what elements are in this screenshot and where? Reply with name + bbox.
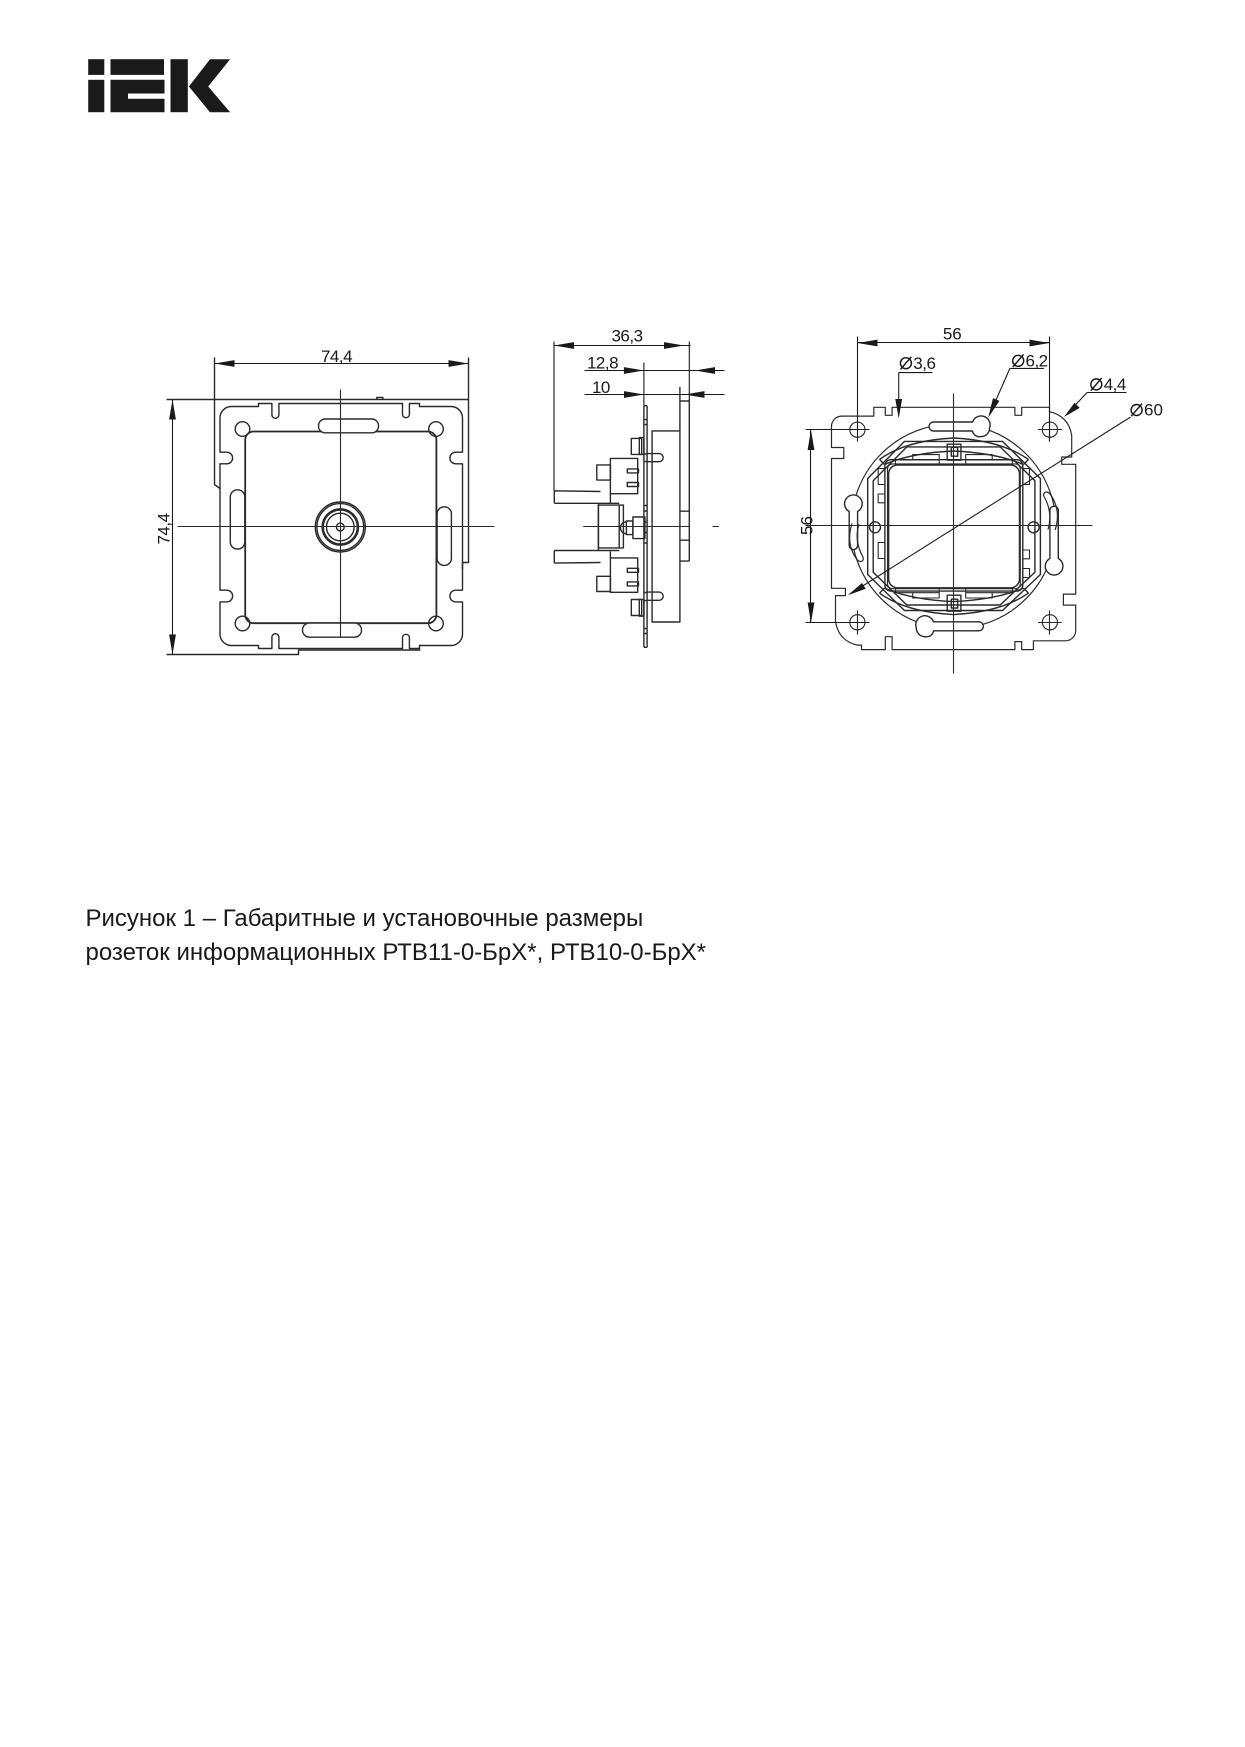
svg-text:74,4: 74,4 — [321, 347, 352, 366]
svg-text:60: 60 — [1144, 401, 1163, 420]
svg-text:12,8: 12,8 — [587, 354, 618, 373]
svg-text:розеток информационных РТВ11-0: розеток информационных РТВ11-0-БрХ*, РТВ… — [86, 939, 707, 966]
svg-text:36,3: 36,3 — [611, 326, 642, 345]
svg-text:3,6: 3,6 — [913, 354, 935, 373]
svg-text:Рисунок 1 – Габаритные и устан: Рисунок 1 – Габаритные и установочные ра… — [86, 905, 644, 932]
svg-text:74,4: 74,4 — [155, 513, 174, 544]
svg-text:56: 56 — [798, 516, 817, 535]
svg-text:6,2: 6,2 — [1026, 351, 1048, 370]
svg-text:4,4: 4,4 — [1104, 375, 1126, 394]
svg-text:56: 56 — [943, 325, 962, 344]
svg-text:10: 10 — [592, 378, 610, 397]
